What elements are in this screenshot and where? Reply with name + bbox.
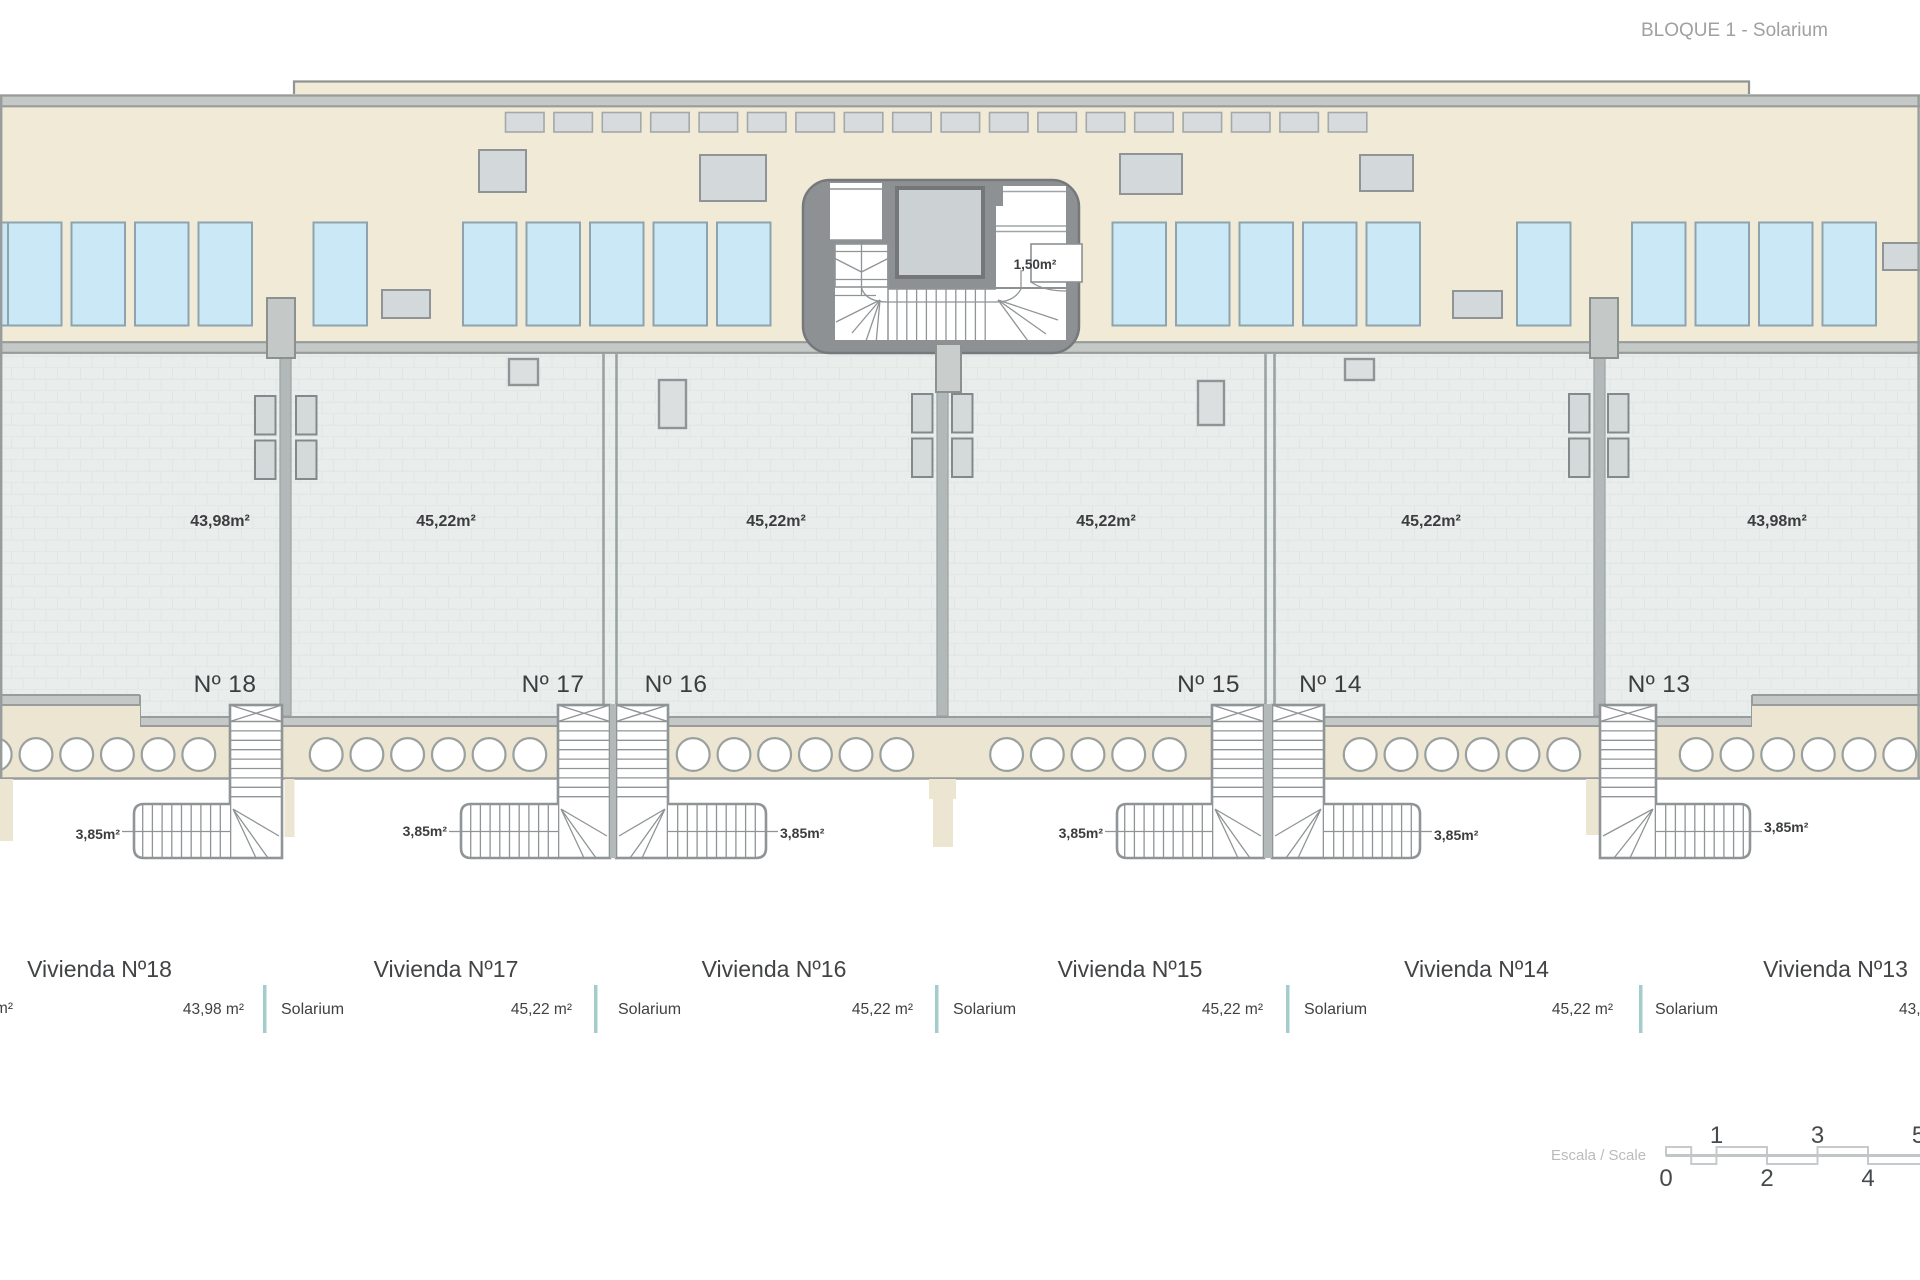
svg-text:0: 0 xyxy=(1659,1165,1672,1192)
svg-text:45,22m²: 45,22m² xyxy=(1401,513,1461,530)
svg-text:Nº 15: Nº 15 xyxy=(1177,671,1240,698)
svg-text:Solarium: Solarium xyxy=(953,1001,1016,1018)
svg-text:Nº 18: Nº 18 xyxy=(194,671,257,698)
svg-text:Solarium: Solarium xyxy=(281,1001,344,1018)
svg-text:Nº 17: Nº 17 xyxy=(522,671,585,698)
svg-text:1: 1 xyxy=(1710,1122,1723,1149)
svg-text:45,22m²: 45,22m² xyxy=(1076,513,1136,530)
svg-text:Solarium: Solarium xyxy=(1304,1001,1367,1018)
svg-text:4: 4 xyxy=(1861,1165,1874,1192)
svg-text:45,22 m²: 45,22 m² xyxy=(1552,1001,1613,1018)
svg-text:Vivienda Nº15: Vivienda Nº15 xyxy=(1058,956,1203,982)
svg-text:Vivienda Nº13: Vivienda Nº13 xyxy=(1763,956,1908,982)
svg-text:Nº 14: Nº 14 xyxy=(1299,671,1362,698)
svg-text:3,85m²: 3,85m² xyxy=(1434,827,1479,843)
svg-text:5: 5 xyxy=(1912,1122,1920,1149)
svg-text:45,22m²: 45,22m² xyxy=(416,513,476,530)
svg-text:Nº 16: Nº 16 xyxy=(645,671,708,698)
svg-text:3,85m²: 3,85m² xyxy=(1059,825,1104,841)
svg-text:45,22 m²: 45,22 m² xyxy=(511,1001,572,1018)
svg-text:3,85m²: 3,85m² xyxy=(1764,819,1809,835)
svg-text:45,22m²: 45,22m² xyxy=(746,513,806,530)
svg-text:Solarium: Solarium xyxy=(1655,1001,1718,1018)
svg-text:3,85m²: 3,85m² xyxy=(780,825,825,841)
svg-text:Vivienda Nº17: Vivienda Nº17 xyxy=(374,956,519,982)
svg-text:Solarium: Solarium xyxy=(618,1001,681,1018)
svg-text:3: 3 xyxy=(1811,1122,1824,1149)
svg-text:BLOQUE 1 - Solarium: BLOQUE 1 - Solarium xyxy=(1641,20,1828,41)
svg-text:Nº 13: Nº 13 xyxy=(1628,671,1691,698)
svg-text:2: 2 xyxy=(1760,1165,1773,1192)
svg-text:1,50m²: 1,50m² xyxy=(1014,257,1057,272)
svg-text:Vivienda Nº18: Vivienda Nº18 xyxy=(27,956,172,982)
svg-text:Escala / Scale: Escala / Scale xyxy=(1551,1147,1646,1164)
svg-text:Vivienda Nº14: Vivienda Nº14 xyxy=(1404,956,1549,982)
svg-text:m²: m² xyxy=(0,1000,13,1017)
svg-text:43,98m²: 43,98m² xyxy=(190,513,250,530)
svg-text:3,85m²: 3,85m² xyxy=(403,823,448,839)
svg-text:45,22 m²: 45,22 m² xyxy=(852,1001,913,1018)
svg-text:43,98m²: 43,98m² xyxy=(1747,513,1807,530)
svg-text:3,85m²: 3,85m² xyxy=(76,826,121,842)
svg-text:43,98 m²: 43,98 m² xyxy=(183,1001,244,1018)
svg-text:45,22 m²: 45,22 m² xyxy=(1202,1001,1263,1018)
svg-text:43,9: 43,9 xyxy=(1899,1001,1920,1018)
svg-text:Vivienda Nº16: Vivienda Nº16 xyxy=(702,956,847,982)
